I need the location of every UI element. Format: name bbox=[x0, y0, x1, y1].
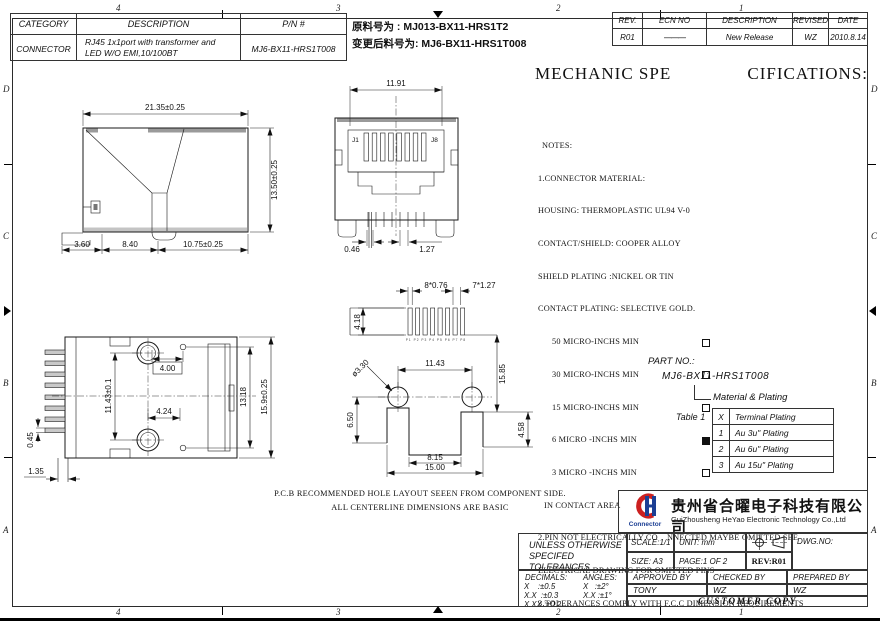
zone-label-right: C bbox=[871, 231, 877, 241]
zone-label-bottom: 3 bbox=[336, 607, 341, 617]
first-angle-projection-icon bbox=[752, 535, 767, 550]
rev-cell: REV:R01 bbox=[746, 552, 792, 570]
decimals-label: DECIMALS: bbox=[525, 573, 567, 582]
company-name-en: GuiZhousheng HeYao Electronic Technology… bbox=[671, 515, 846, 524]
dim-label: 21.35±0.25 bbox=[145, 103, 186, 112]
center-mark-icon bbox=[433, 11, 443, 18]
zone-label-left: C bbox=[3, 231, 9, 241]
rev-column-header: REV. bbox=[613, 13, 643, 28]
dim-label: 13.50±0.25 bbox=[270, 159, 279, 200]
dim-label: 8.15 bbox=[427, 453, 443, 462]
approved-by-value: TONY bbox=[627, 584, 707, 596]
drawing-sheet: 4 3 2 1 4 3 2 1 D C B A D C B A CATEGORY… bbox=[0, 0, 880, 622]
date-column-header: DATE bbox=[829, 13, 867, 28]
plating-table: XTerminal Plating 1Au 3u" Plating 2Au 6u… bbox=[712, 408, 834, 473]
zone-label-top: 4 bbox=[116, 3, 121, 13]
dim-label: 1.35 bbox=[28, 467, 44, 476]
description-column-header: DESCRIPTION bbox=[77, 14, 241, 34]
zone-label-left: B bbox=[3, 378, 9, 388]
projection-symbols-cell bbox=[746, 533, 792, 552]
part-header-table: CATEGORY DESCRIPTION P/N # CONNECTOR RJ4… bbox=[10, 13, 347, 61]
view-hole-layout: 11.43 ø3.30 6.50 15.85 4.58 8.15 15.00 bbox=[346, 335, 533, 477]
page-cell: PAGE:1 OF 2 bbox=[674, 552, 746, 570]
dim-label: 6.50 bbox=[346, 412, 355, 428]
cone-projection-icon bbox=[771, 536, 787, 549]
company-name-cn: 贵州省合曜电子科技有限公司 bbox=[671, 495, 867, 533]
table-row: 1Au 3u" Plating bbox=[713, 424, 833, 440]
size-cell: SIZE: A3 bbox=[627, 552, 674, 570]
angles-label: ANGLES: bbox=[583, 573, 617, 582]
plating-checkbox bbox=[702, 339, 710, 347]
pin-number-labels: P1 P2 P3 P4 P5 P6 P7 P8 bbox=[406, 338, 466, 342]
plating-checkbox bbox=[702, 469, 710, 477]
plating-option-row: 50 MICRO-INCHS MIN bbox=[552, 337, 868, 348]
approved-by-header: APPROVED BY bbox=[627, 570, 707, 584]
pcb-note-line2: ALL CENTERLINE DIMENSIONS ARE BASIC bbox=[220, 503, 620, 512]
ecn-column-header: ECN NO bbox=[643, 13, 707, 28]
jack-pin-label: J1 bbox=[352, 137, 359, 144]
company-logo: Connector bbox=[623, 493, 667, 531]
dim-label: 15.9±0.25 bbox=[260, 379, 269, 415]
category-column-header: CATEGORY bbox=[11, 14, 77, 34]
pn-column-header: P/N # bbox=[241, 14, 346, 34]
table-row: 2Au 6u" Plating bbox=[713, 440, 833, 456]
dim-label: 4.24 bbox=[156, 407, 172, 416]
dim-label: 0.45 bbox=[26, 432, 35, 448]
revision-date: 2010.8.14 bbox=[829, 29, 867, 46]
dim-label: ø3.30 bbox=[350, 357, 371, 378]
customer-copy-banner: CUSTOMER COPY bbox=[627, 596, 868, 607]
sheet-title: MECHANIC SPE CIFICATIONS: bbox=[535, 64, 868, 84]
table-row: XTerminal Plating bbox=[713, 409, 833, 424]
dim-label: 4.58 bbox=[517, 422, 526, 438]
change-note-line1: 原料号为 : MJ013-BX11-HRS1T2 bbox=[352, 19, 526, 36]
revised-column-header: REVISED bbox=[793, 13, 829, 28]
zone-tick bbox=[868, 457, 876, 458]
zone-tick bbox=[222, 607, 223, 615]
dim-label: 4.18 bbox=[353, 314, 362, 330]
part-no-label: PART NO.: bbox=[648, 356, 695, 367]
pcb-note-line1: P.C.B RECOMMENDED HOLE LAYOUT SEEEN FROM… bbox=[220, 489, 620, 498]
dim-label: 11.91 bbox=[386, 79, 406, 88]
plating-checkbox bbox=[702, 404, 710, 412]
center-mark-icon bbox=[4, 306, 11, 316]
prepared-by-value: WZ bbox=[787, 584, 868, 596]
revised-by: WZ bbox=[793, 29, 829, 46]
tolerance-values-cell: DECIMALS: ANGLES: X :±0.5 X :±2° X.X :±0… bbox=[518, 570, 627, 607]
tolerance-note-cell: UNLESS OTHERWISE SPECIFED TOLERANCES bbox=[518, 533, 627, 570]
zone-label-top: 2 bbox=[556, 3, 561, 13]
unit-cell: UNIT: mm bbox=[674, 533, 746, 552]
note-line: SHIELD PLATING :NICKEL OR TIN bbox=[538, 272, 868, 283]
dim-label: 8.40 bbox=[122, 240, 138, 249]
dim-label: 15.00 bbox=[425, 463, 446, 472]
view-front: J1 J8 11.91 0.46 1.27 bbox=[335, 79, 458, 254]
plating-checkbox bbox=[702, 437, 710, 445]
zone-tick bbox=[4, 457, 12, 458]
zone-label-left: D bbox=[3, 84, 10, 94]
description-column-header: DESCRIPTION bbox=[707, 13, 793, 28]
view-side: 21.35±0.25 13.50±0.25 3.60 8.40 10.75±0.… bbox=[62, 103, 279, 254]
zone-tick bbox=[868, 164, 876, 165]
part-no-value: MJ6-BX11-HRS1T008 bbox=[662, 371, 769, 382]
dim-label: 1.27 bbox=[419, 245, 435, 254]
table1-label: Table 1 bbox=[676, 412, 705, 422]
zone-label-left: A bbox=[3, 525, 9, 535]
ecn-value: ——— bbox=[643, 29, 707, 46]
revision-description: New Release bbox=[707, 29, 793, 46]
company-logo-text: Connector bbox=[623, 521, 667, 528]
rev-value: R01 bbox=[613, 29, 643, 46]
revision-table: REV. ECN NO DESCRIPTION REVISED DATE R01… bbox=[612, 12, 868, 46]
technical-drawing-views: 21.35±0.25 13.50±0.25 3.60 8.40 10.75±0.… bbox=[20, 55, 565, 525]
dim-label: 15.85 bbox=[498, 363, 507, 384]
note-line: HOUSING: THERMOPLASTIC UL94 V-0 bbox=[538, 206, 868, 217]
zone-label-right: D bbox=[871, 84, 878, 94]
company-block: Connector 贵州省合曜电子科技有限公司 GuiZhousheng HeY… bbox=[618, 490, 868, 533]
zone-label-top: 3 bbox=[336, 3, 341, 13]
scale-cell: SCALE:1/1 bbox=[627, 533, 674, 552]
company-logo-icon bbox=[625, 493, 665, 519]
prepared-by-header: PREPARED BY bbox=[787, 570, 868, 584]
dim-label: 10.75±0.25 bbox=[183, 240, 224, 249]
view-pcb-component-side: 4.00 11.43±0.1 4.24 13.18 15.9±0.25 0.45 bbox=[24, 337, 275, 482]
zone-label-right: A bbox=[871, 525, 877, 535]
dim-label: 7*1.27 bbox=[472, 281, 496, 290]
part-no-callout-line bbox=[694, 385, 711, 400]
note-line: CONTACT PLATING: SELECTIVE GOLD. bbox=[538, 304, 868, 315]
view-pin-detail: 8*0.76 7*1.27 4.18 P1 P2 P3 P4 P5 P6 P7 … bbox=[350, 281, 497, 342]
zone-tick bbox=[4, 164, 12, 165]
notes-heading: NOTES: bbox=[542, 141, 868, 152]
dim-label: 8*0.76 bbox=[424, 281, 448, 290]
change-note: 原料号为 : MJ013-BX11-HRS1T2 变更后料号为: MJ6-BX1… bbox=[352, 19, 526, 53]
dim-label: 11.43 bbox=[425, 359, 445, 368]
checked-by-header: CHECKED BY bbox=[707, 570, 787, 584]
zone-label-right: B bbox=[871, 378, 877, 388]
dim-label: 11.43±0.1 bbox=[104, 378, 113, 413]
dim-label: 0.46 bbox=[344, 245, 360, 254]
material-plating-label: Material & Plating bbox=[713, 392, 787, 403]
center-mark-icon bbox=[869, 306, 876, 316]
jack-pin-label: J8 bbox=[431, 137, 438, 144]
dim-label: 3.60 bbox=[74, 240, 90, 249]
center-mark-icon bbox=[433, 606, 443, 613]
note-line: CONTACT/SHIELD: COOPER ALLOY bbox=[538, 239, 868, 250]
sheet-title-part2: CIFICATIONS: bbox=[747, 64, 868, 84]
table-row: 3Au 15u" Plating bbox=[713, 456, 833, 472]
zone-label-bottom: 4 bbox=[116, 607, 121, 617]
change-note-line2: 变更后料号为: MJ6-BX11-HRS1T008 bbox=[352, 36, 526, 53]
dim-label: 4.00 bbox=[160, 364, 176, 373]
note-line: 1.CONNECTOR MATERIAL: bbox=[538, 174, 868, 185]
checked-by-value: WZ bbox=[707, 584, 787, 596]
dwg-no-cell: DWG.NO: bbox=[792, 533, 868, 570]
dim-label: 13.18 bbox=[239, 386, 248, 407]
